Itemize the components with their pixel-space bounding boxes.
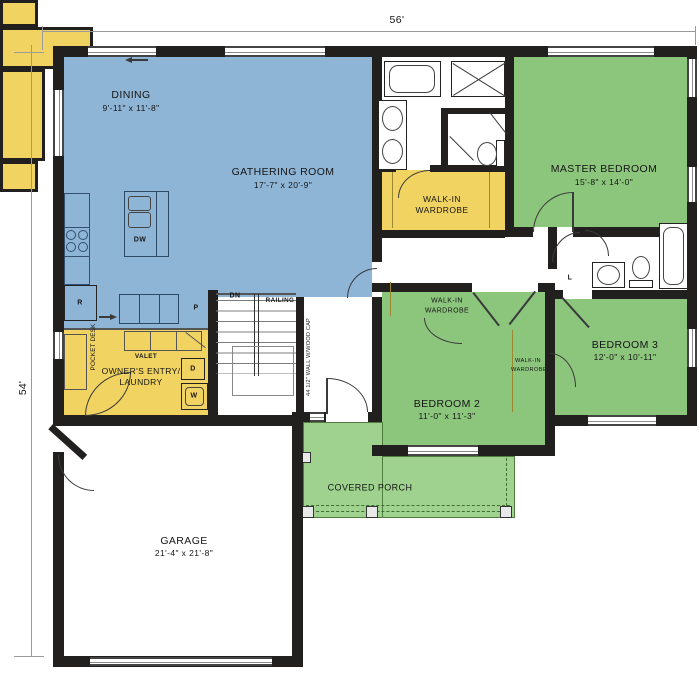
wall-corridor-top xyxy=(372,230,505,238)
left-dimension-tick-bottom xyxy=(14,656,44,657)
window-bedroom2-bottom xyxy=(408,445,478,456)
wall-kitchen-laundry-line xyxy=(64,328,208,330)
dining-vent-arrow-head xyxy=(125,57,132,63)
washer-label: W xyxy=(190,393,197,400)
pocket-desk-surface xyxy=(64,334,87,390)
front-door-leaf xyxy=(326,378,328,414)
refrigerator-label: R xyxy=(77,300,82,307)
kitchen-bench-div1 xyxy=(139,294,140,324)
floor-plan: 56' 54' xyxy=(0,0,700,700)
bedroom3-size: 12'-0" x 10'-11" xyxy=(594,353,657,362)
owners-entry-label-1: OWNER'S ENTRY/ xyxy=(102,367,181,376)
dining-label: DINING xyxy=(111,90,150,101)
bedroom2-wardrobe-rod xyxy=(390,282,391,316)
gathering-room-size: 17'-7" x 20'-9" xyxy=(254,181,312,190)
window-gathering-top xyxy=(225,46,325,57)
stairs-landing-outline xyxy=(232,346,294,396)
wall-garage-right xyxy=(292,415,303,667)
kitchen-arrow-head xyxy=(110,314,117,320)
bedroom2-wardrobe-label-2: WARDROBE xyxy=(425,308,469,315)
window-master-right-2 xyxy=(687,167,697,202)
wall-bedroom3-top xyxy=(592,290,697,299)
master-bedroom-door-leaf xyxy=(572,192,574,232)
master-wardrobe-rod-right xyxy=(489,172,490,228)
wall-toilet-room-v xyxy=(441,114,448,172)
stairs-down-label: DN xyxy=(230,293,241,300)
window-dining-left xyxy=(53,90,64,156)
valet-label: VALET xyxy=(135,354,157,360)
pantry-box xyxy=(0,161,38,192)
dining-vent-arrow-line xyxy=(131,59,148,61)
master-toilet-icon xyxy=(477,142,497,166)
left-dimension-label: 54' xyxy=(18,381,29,395)
bedroom3-wardrobe-label-2: WARDROBE xyxy=(511,368,547,374)
owners-entry-label-2: LAUNDRY xyxy=(119,378,162,387)
master-sink-icon-1 xyxy=(382,106,403,131)
wall-masterbed-bottom-l xyxy=(505,227,533,237)
garage-size: 21'-4" x 21'-8" xyxy=(155,549,213,558)
window-master-right-1 xyxy=(687,59,697,97)
master-bedroom-label: MASTER BEDROOM xyxy=(551,164,658,175)
stair-wall-note: 44 1/2" WALL W/WOOD CAP xyxy=(307,318,313,396)
porch-post-left xyxy=(302,506,314,518)
master-wardrobe-rod-left xyxy=(392,172,393,228)
linen-closet xyxy=(0,0,38,27)
gathering-room-label: GATHERING ROOM xyxy=(232,167,335,178)
bath2-tub-inner xyxy=(663,227,684,285)
kitchen-island-div xyxy=(156,191,157,257)
linen-label: L xyxy=(568,275,573,282)
front-door-arc xyxy=(327,378,368,412)
bath2-toilet-icon xyxy=(632,256,650,279)
window-bedroom3-right xyxy=(687,329,697,367)
cooktop-burner-2 xyxy=(78,230,88,240)
top-dimension-line xyxy=(42,31,695,32)
window-dining-top xyxy=(88,46,156,57)
window-bedroom3-bottom xyxy=(588,415,656,426)
cooktop-burner-1 xyxy=(66,230,76,240)
porch-dashed-edge-bottom2 xyxy=(306,511,510,512)
left-dimension-line xyxy=(31,45,32,657)
bath2-toilet-tank xyxy=(629,280,653,288)
wall-laundry-garage xyxy=(53,415,303,426)
master-wardrobe-label-1: WALK-IN xyxy=(423,195,461,204)
cooktop-burner-4 xyxy=(78,242,88,252)
master-bedroom-floor xyxy=(514,57,687,227)
window-pocket-desk-left xyxy=(53,332,64,359)
kitchen-counter-div2 xyxy=(64,256,90,257)
master-wardrobe-label-2: WARDROBE xyxy=(416,206,469,215)
bedroom2-wardrobe-label-1: WALK-IN xyxy=(431,298,463,305)
cooktop-burner-3 xyxy=(66,242,76,252)
valet-counter-div2 xyxy=(176,331,177,351)
top-dimension-tick-right xyxy=(695,26,696,45)
bath2-sink-icon xyxy=(597,265,620,285)
wall-bedroom2-left xyxy=(372,297,382,422)
kitchen-counter-div1 xyxy=(64,227,90,228)
valet-counter-div1 xyxy=(150,331,151,351)
porch-dashed-edge-right xyxy=(506,458,507,506)
garage-label: GARAGE xyxy=(160,536,207,547)
dishwasher-label: DW xyxy=(134,237,146,244)
left-dimension-tick-top xyxy=(14,52,44,53)
kitchen-bench xyxy=(119,294,179,324)
kitchen-bench-div2 xyxy=(159,294,160,324)
window-master-top xyxy=(548,46,654,57)
bedroom2-label: BEDROOM 2 xyxy=(414,399,481,410)
bedroom3-wardrobe-box xyxy=(0,69,45,161)
pantry-label: P xyxy=(193,305,198,312)
bedroom3-label: BEDROOM 3 xyxy=(592,340,659,351)
bedroom2-size: 11'-0" x 11'-3" xyxy=(418,412,475,421)
top-dimension-label: 56' xyxy=(390,15,405,26)
bedroom3-wardrobe-label-1: WALK-IN xyxy=(515,359,541,365)
island-sink-basin-2 xyxy=(128,212,151,228)
porch-post-right xyxy=(500,506,512,518)
dryer-label: D xyxy=(190,366,195,373)
covered-porch-label: COVERED PORCH xyxy=(328,484,413,493)
porch-dashed-edge-bottom xyxy=(306,505,510,506)
master-bedroom-size: 15'-8" x 14'-0" xyxy=(575,178,633,187)
wall-garage-left xyxy=(53,452,64,667)
island-sink-basin-1 xyxy=(128,196,151,211)
garage-door xyxy=(90,657,272,666)
master-toilet-door-leaf xyxy=(449,136,474,161)
master-bathtub-inner xyxy=(389,65,435,93)
master-sink-icon-2 xyxy=(382,139,403,164)
front-door-sidelite xyxy=(310,412,324,422)
master-toilet-tank xyxy=(496,140,505,167)
wall-toilet-room-h xyxy=(441,108,505,114)
wall-stairs-right xyxy=(296,297,304,412)
pocket-desk-label: POCKET DESK xyxy=(91,324,97,371)
wall-corridor-bottom-l xyxy=(372,283,472,292)
wall-masterbed-left xyxy=(505,46,514,227)
covered-porch-floor-left xyxy=(303,422,383,518)
porch-post-center xyxy=(366,506,378,518)
stairs-railing-label: RAILING xyxy=(266,298,295,304)
dining-size: 9'-11" x 11'-8" xyxy=(102,104,159,113)
valet-counter xyxy=(124,331,202,351)
top-dimension-tick-left xyxy=(42,26,43,50)
